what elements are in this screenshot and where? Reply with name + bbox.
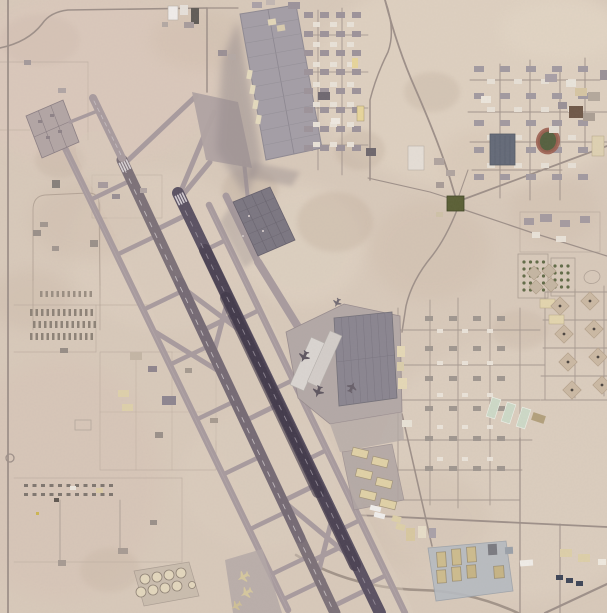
satellite-canvas: Satellite aerial view of a desert airbas… <box>0 0 607 613</box>
satellite-image-desert-airbase: Satellite aerial view of a desert airbas… <box>0 0 607 613</box>
sensor-grain <box>0 0 607 613</box>
layer-grain <box>0 0 607 613</box>
